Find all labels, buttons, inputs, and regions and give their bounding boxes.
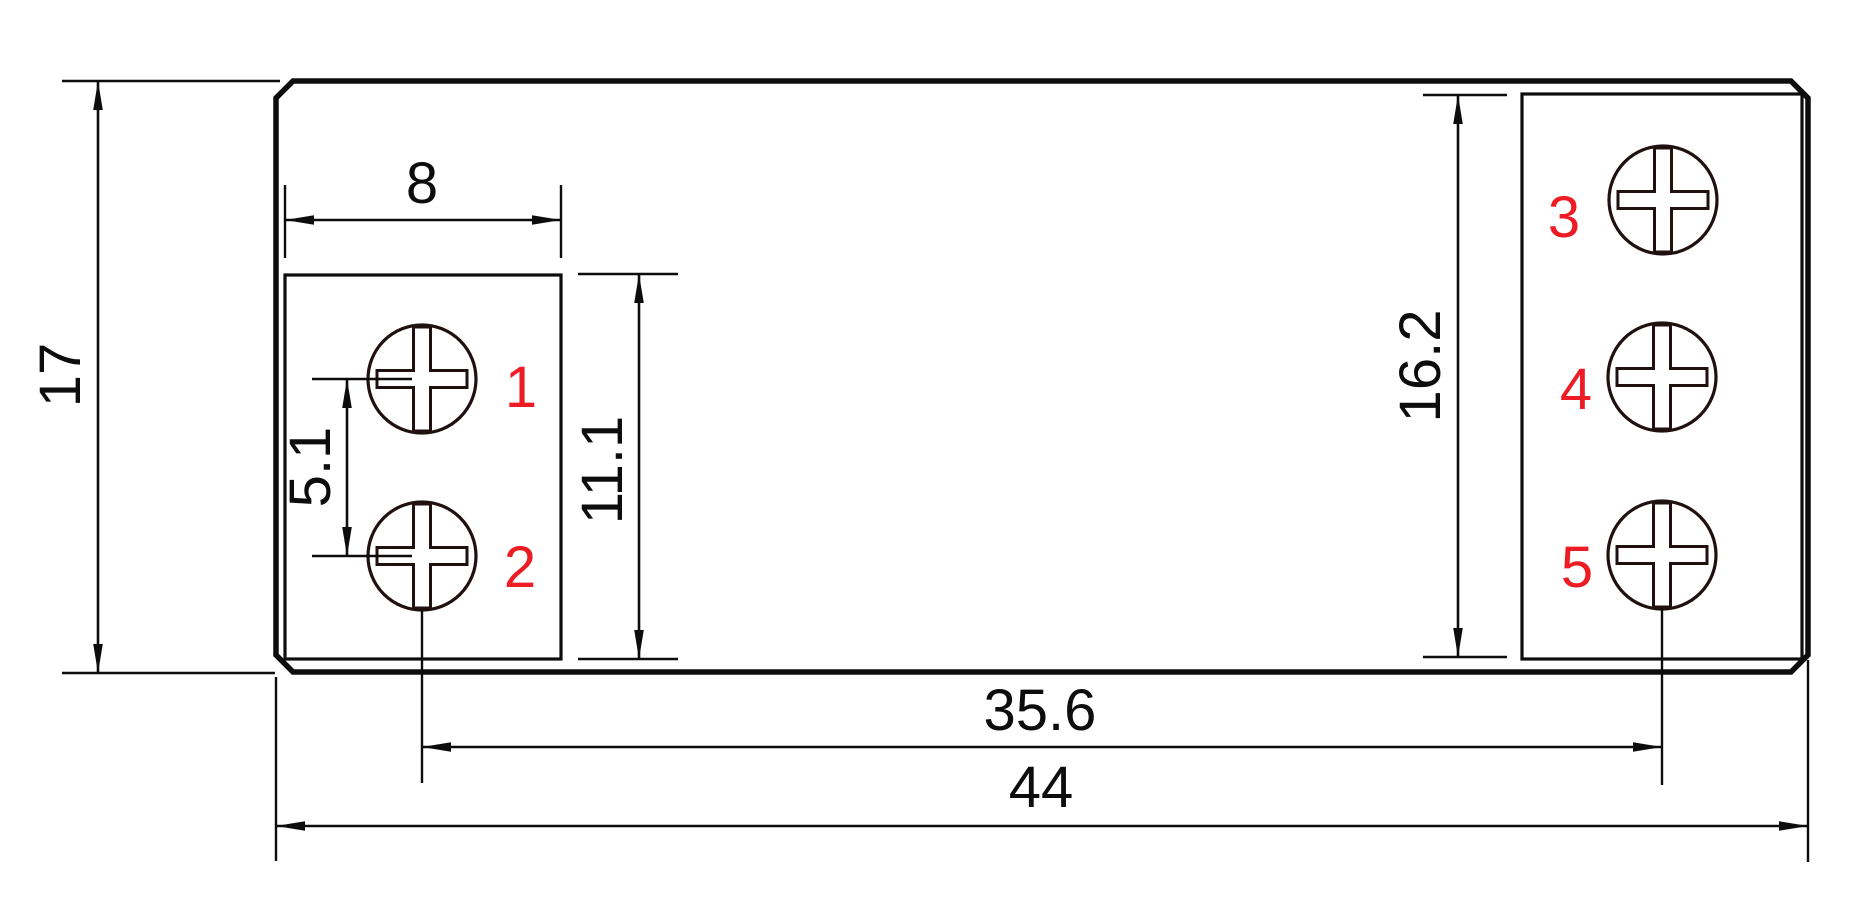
terminal-number-4: 4	[1560, 357, 1592, 422]
screw-3-head	[1609, 146, 1717, 254]
terminal-number-3: 3	[1548, 185, 1580, 250]
screw-5-cross-slot	[1617, 503, 1707, 607]
dimension-right-block-height: 16.2	[1388, 95, 1507, 657]
dimension-label-overall-width: 44	[1009, 755, 1074, 820]
screw-4-head	[1608, 323, 1716, 431]
dimension-overall-height: 17	[28, 81, 280, 673]
dimension-label-left-block-height: 11.1	[570, 416, 635, 525]
screw-3-cross-slot	[1618, 148, 1708, 252]
screw-terminal-3	[1609, 146, 1717, 254]
dimension-label-right-block-height: 16.2	[1388, 310, 1453, 423]
screw-5-head	[1608, 501, 1716, 609]
dimension-hole-block-width: 8	[285, 151, 561, 258]
dimension-label-hole-block-width: 8	[406, 151, 438, 216]
drawing-canvas: 1 2 3 4 5 17 8 5.1 11.1 16.2	[0, 0, 1866, 901]
dimension-left-block-height: 11.1	[570, 274, 678, 659]
dimension-hole-pitch: 5.1	[278, 379, 412, 556]
terminal-number-1: 1	[505, 355, 537, 420]
dimension-label-hole-span: 35.6	[984, 678, 1097, 743]
screw-terminal-5	[1608, 501, 1716, 609]
screw-4-cross-slot	[1617, 325, 1707, 429]
terminal-number-5: 5	[1561, 535, 1593, 600]
technical-drawing: 1 2 3 4 5 17 8 5.1 11.1 16.2	[0, 0, 1866, 901]
terminal-number-2: 2	[504, 535, 536, 600]
dimension-label-overall-height: 17	[28, 343, 93, 408]
screw-terminal-4	[1608, 323, 1716, 431]
dimension-label-hole-pitch: 5.1	[278, 427, 343, 508]
